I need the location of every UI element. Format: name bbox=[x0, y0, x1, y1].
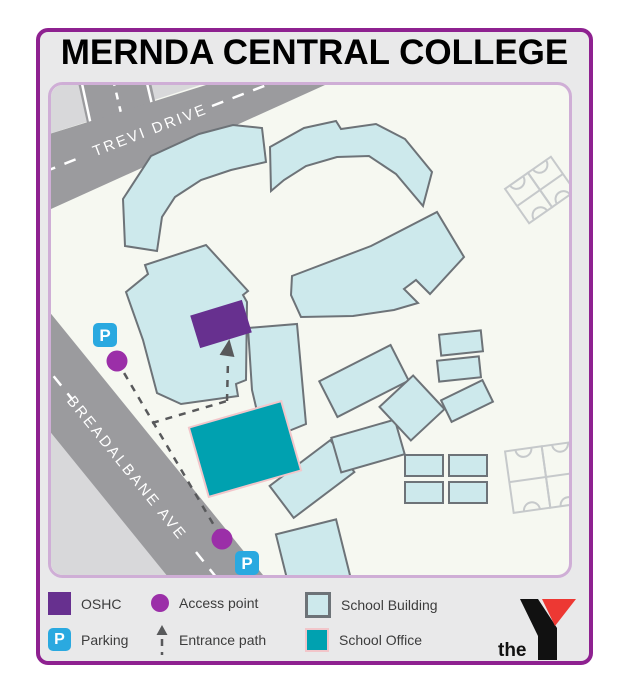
the-y-logo: the bbox=[497, 596, 583, 664]
legend-label-school-building: School Building bbox=[341, 597, 438, 613]
entrance-path-swatch bbox=[155, 624, 169, 656]
school-building bbox=[439, 330, 483, 355]
legend-item-school-office: School Office bbox=[305, 628, 422, 652]
campus-map: TREVI DRIVE BREADALBANE AVE bbox=[48, 82, 572, 578]
legend-item-entrance-path: Entrance path bbox=[155, 624, 266, 656]
legend-item-access-point: Access point bbox=[151, 594, 258, 612]
legend-label-access-point: Access point bbox=[179, 595, 258, 611]
legend-label-entrance-path: Entrance path bbox=[179, 632, 266, 648]
school-building-swatch bbox=[305, 592, 331, 618]
page-title: MERNDA CENTRAL COLLEGE bbox=[36, 33, 593, 73]
access-point-swatch bbox=[151, 594, 169, 612]
school-office-swatch bbox=[305, 628, 329, 652]
parking-icon-north: P bbox=[93, 323, 117, 347]
legend-item-oshc: OSHC bbox=[48, 592, 121, 615]
legend-label-school-office: School Office bbox=[339, 632, 422, 648]
oshc-swatch bbox=[48, 592, 71, 615]
parking-swatch: P bbox=[48, 628, 71, 651]
legend-label-parking: Parking bbox=[81, 632, 128, 648]
access-point-south bbox=[212, 529, 233, 550]
legend-item-school-building: School Building bbox=[305, 592, 438, 618]
legend-label-oshc: OSHC bbox=[81, 596, 121, 612]
access-point-north bbox=[107, 351, 128, 372]
logo-the-text: the bbox=[498, 640, 527, 661]
parking-icon-south: P bbox=[235, 551, 259, 575]
parking-letter: P bbox=[99, 326, 110, 345]
parking-letter: P bbox=[241, 554, 252, 573]
school-building bbox=[437, 356, 481, 381]
legend-item-parking: P Parking bbox=[48, 628, 128, 651]
